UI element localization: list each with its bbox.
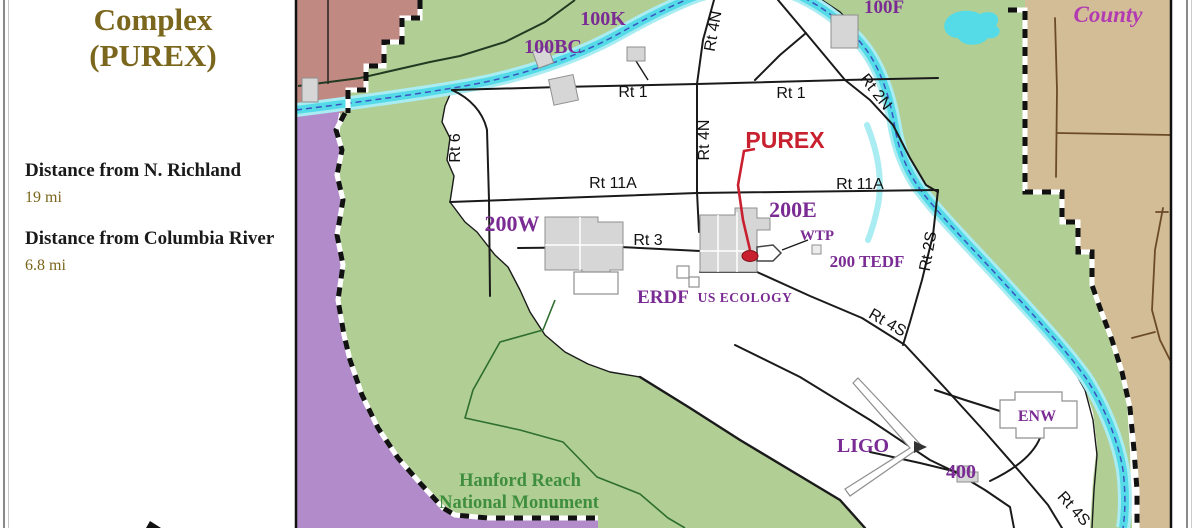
area-label-100f: 100F [864, 0, 904, 18]
area-label-enw: ENW [1018, 408, 1056, 425]
route-label-rt1-east: Rt 1 [776, 85, 805, 102]
purex-location-dot [742, 251, 758, 262]
reactor-100f-building [831, 15, 858, 48]
building-top-center [627, 47, 645, 61]
county-label: County [1073, 2, 1143, 27]
us-ecology-cell-2 [689, 277, 699, 287]
us-ecology-cell-1 [677, 266, 689, 278]
area-label-200e: 200E [769, 197, 817, 222]
hanford-site-map: 100K 100BC 100F County 200W 200E WTP 200… [0, 0, 1200, 528]
building-rt1-west [549, 75, 579, 106]
north-arrow-icon [146, 521, 161, 528]
route-label-rt11a-east: Rt 11A [836, 176, 884, 193]
area-label-erdf: ERDF [637, 287, 689, 308]
area-label-400: 400 [946, 461, 976, 483]
monument-label-line1: Hanford Reach [459, 471, 581, 491]
route-label-rt11a-west: Rt 11A [589, 175, 637, 192]
route-label-rt4n-vertical: Rt 4N [696, 120, 713, 161]
route-label-rt3: Rt 3 [633, 232, 662, 249]
area-label-100bc: 100BC [524, 36, 582, 58]
purex-label: PUREX [745, 127, 825, 153]
route-label-rt1-west: Rt 1 [618, 84, 647, 101]
area-label-ligo: LIGO [837, 435, 889, 457]
area-label-us-ecology: US ECOLOGY [698, 290, 793, 305]
area-label-200w: 200W [485, 211, 540, 236]
route-label-rt6: Rt 6 [447, 133, 464, 162]
monument-label-line2: National Monument [439, 493, 600, 513]
erdf-cell [574, 272, 618, 294]
area-label-200tedf: 200 TEDF [830, 252, 905, 271]
area-label-100k: 100K [580, 8, 626, 30]
area-label-wtp: WTP [800, 228, 834, 244]
reactor-100k-building [302, 78, 318, 102]
tedf-site [812, 245, 821, 254]
